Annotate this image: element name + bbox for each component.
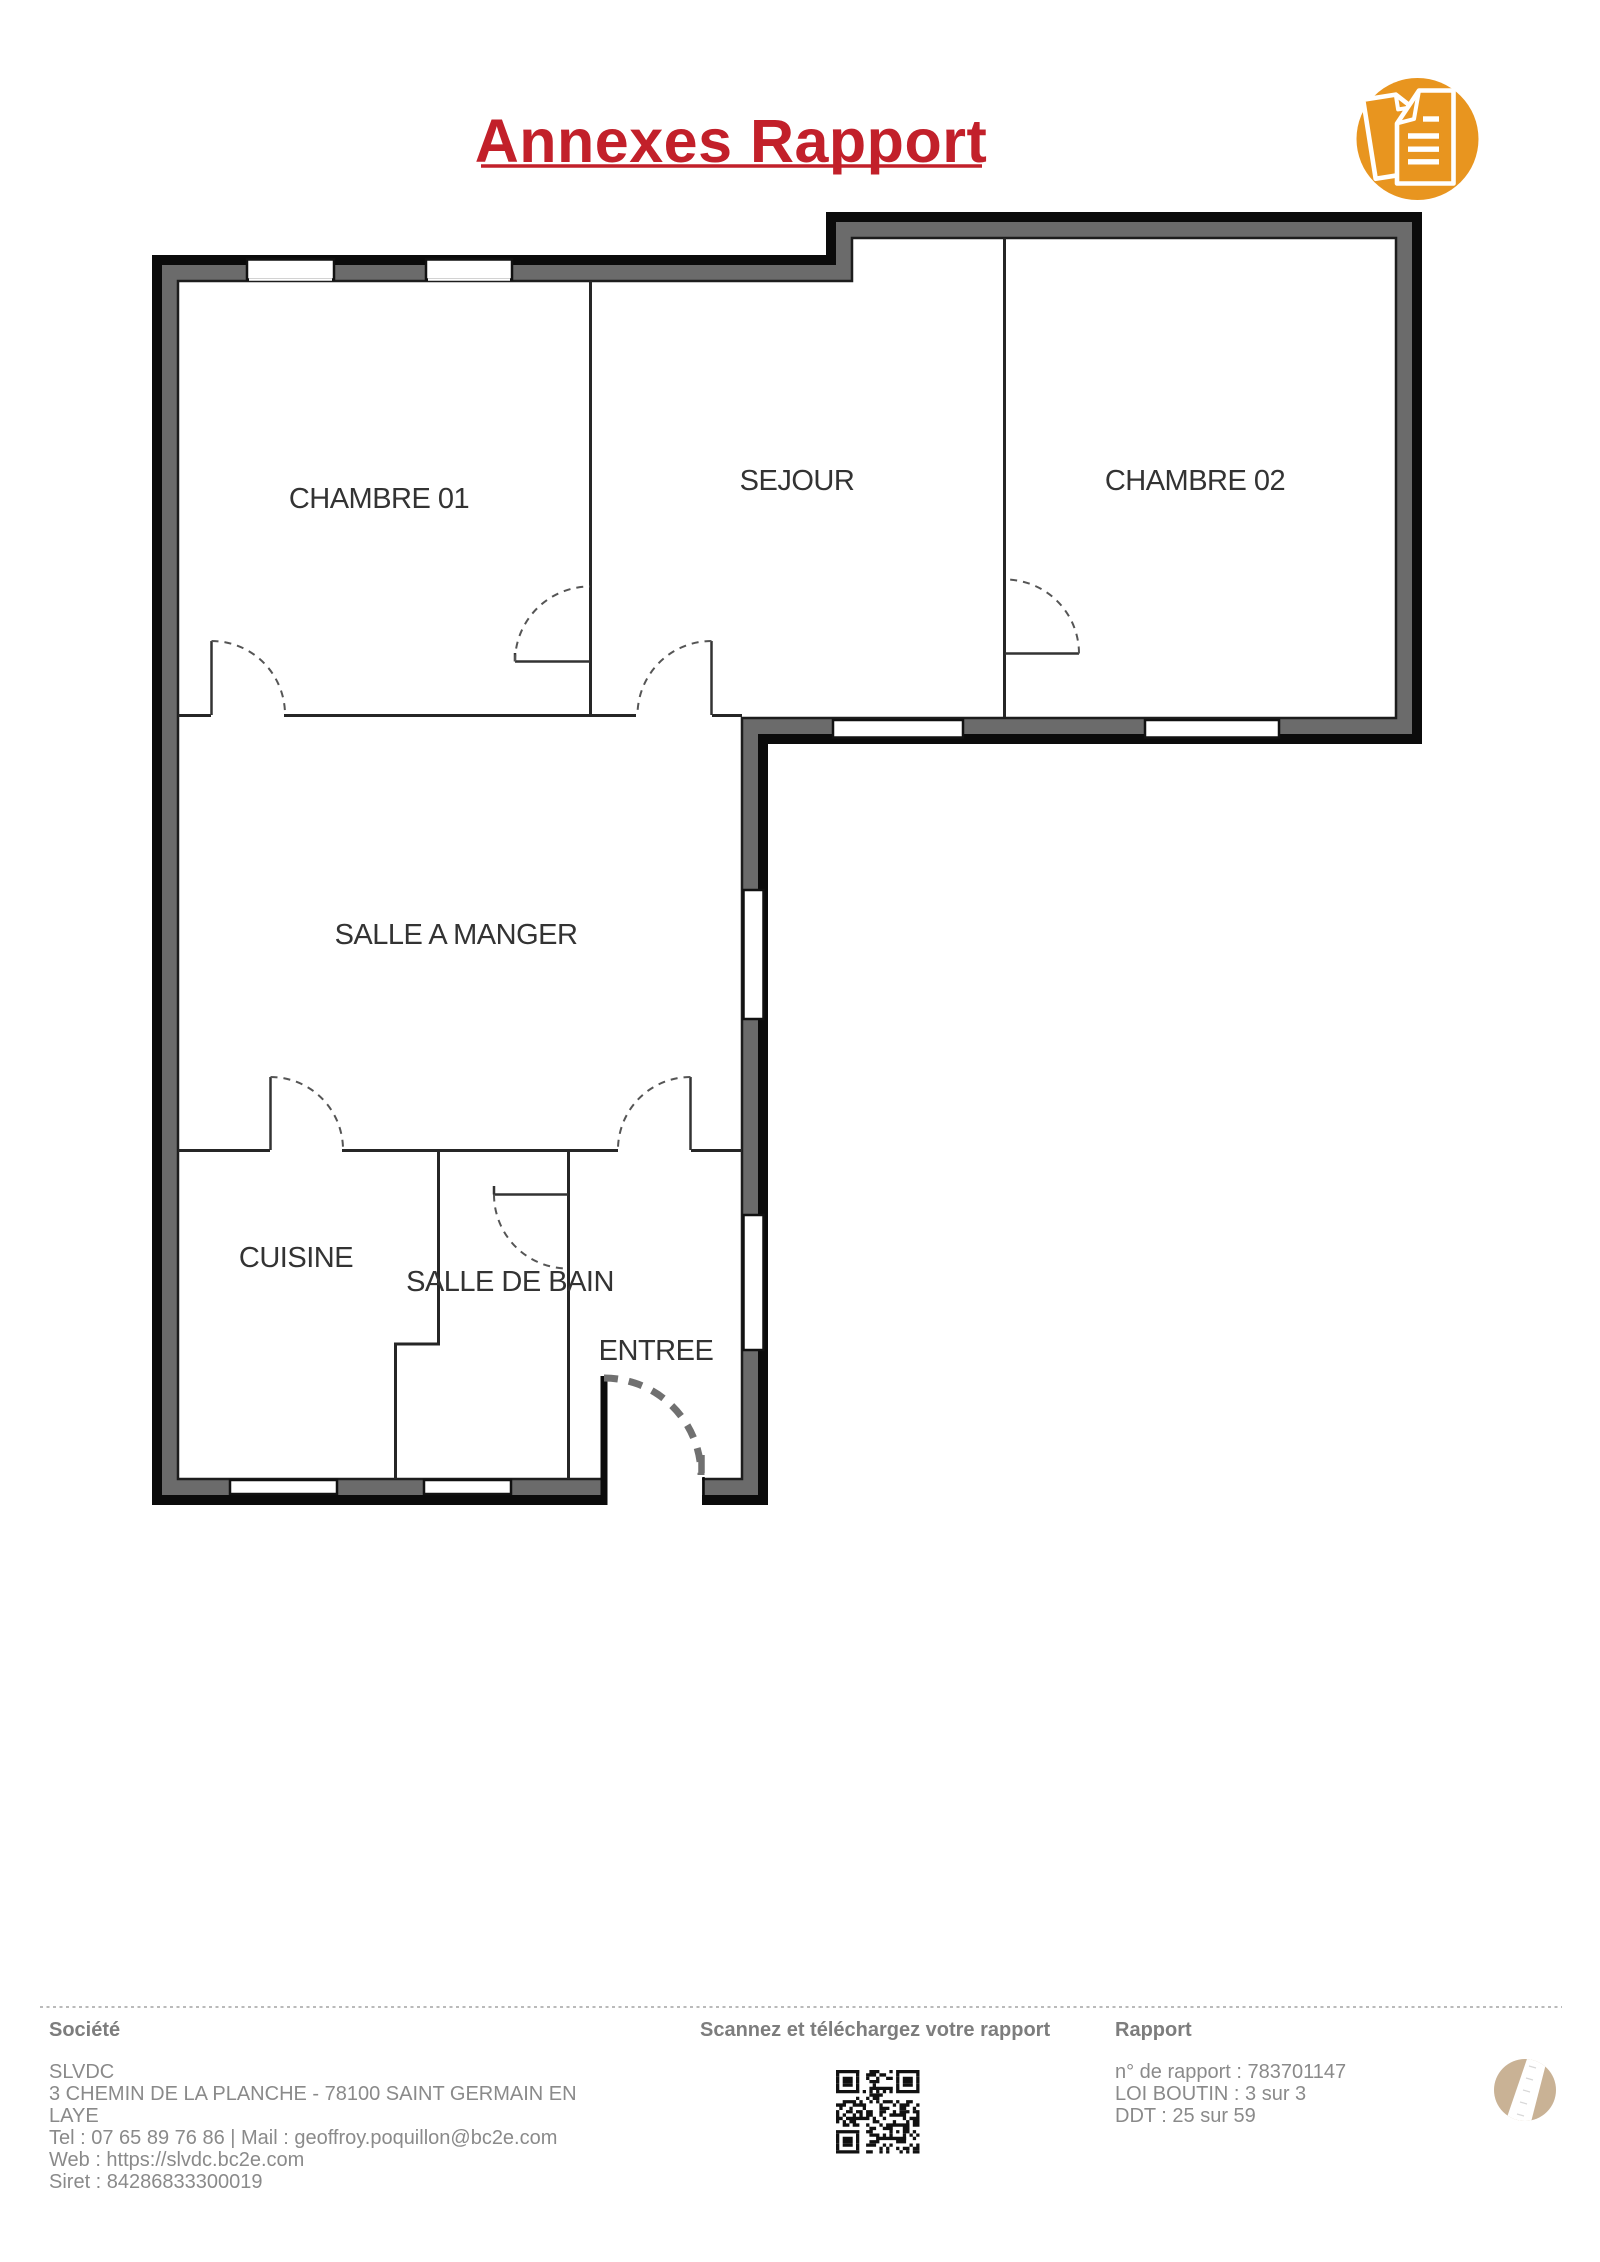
svg-text:Web : https://slvdc.bc2e.com: Web : https://slvdc.bc2e.com bbox=[49, 2149, 304, 2171]
svg-text:ENTREE: ENTREE bbox=[599, 1335, 714, 1367]
svg-text:SALLE A MANGER: SALLE A MANGER bbox=[335, 919, 578, 951]
svg-text:SEJOUR: SEJOUR bbox=[740, 465, 855, 497]
svg-text:CUISINE: CUISINE bbox=[239, 1242, 353, 1274]
svg-text:Siret : 84286833300019: Siret : 84286833300019 bbox=[49, 2171, 263, 2193]
svg-text:CHAMBRE 01: CHAMBRE 01 bbox=[289, 483, 469, 515]
svg-text:SALLE DE BAIN: SALLE DE BAIN bbox=[406, 1266, 614, 1298]
svg-text:DDT : 25 sur 59: DDT : 25 sur 59 bbox=[1115, 2105, 1256, 2127]
svg-text:LAYE: LAYE bbox=[49, 2105, 99, 2127]
svg-text:SLVDC: SLVDC bbox=[49, 2061, 114, 2083]
svg-text:Scannez et téléchargez votre r: Scannez et téléchargez votre rapport bbox=[700, 2019, 1050, 2041]
svg-text:3 CHEMIN DE LA PLANCHE - 78100: 3 CHEMIN DE LA PLANCHE - 78100 SAINT GER… bbox=[49, 2083, 577, 2105]
svg-text:Société: Société bbox=[49, 2019, 120, 2041]
svg-text:Tel : 07 65 89 76 86 | Mail :: Tel : 07 65 89 76 86 | Mail : geoffroy.p… bbox=[49, 2127, 557, 2149]
svg-text:n° de rapport : 783701147: n° de rapport : 783701147 bbox=[1115, 2061, 1346, 2083]
svg-text:Rapport: Rapport bbox=[1115, 2019, 1192, 2041]
svg-text:CHAMBRE 02: CHAMBRE 02 bbox=[1105, 465, 1285, 497]
svg-text:LOI BOUTIN : 3 sur 3: LOI BOUTIN : 3 sur 3 bbox=[1115, 2083, 1306, 2105]
